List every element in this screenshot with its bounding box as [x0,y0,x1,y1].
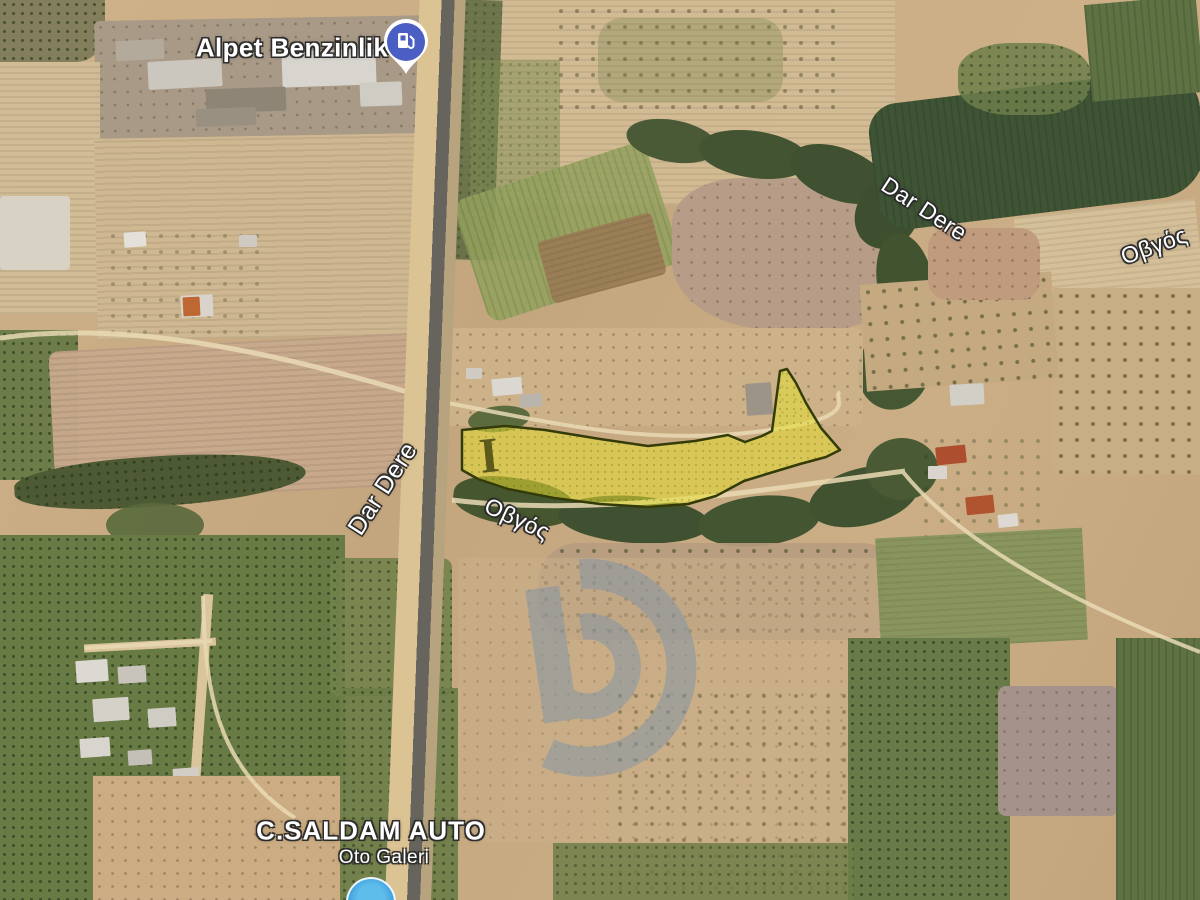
dealer-name-label[interactable]: C.SALDAM AUTO [256,816,486,847]
dealer-type-label: Oto Galeri [339,847,430,869]
map-overlays [0,0,1200,900]
b-logo-watermark-icon [542,574,681,762]
map-canvas[interactable]: Alpet Benzinlik Dar Dere Οβγός Dar Dere … [0,0,1200,900]
gas-station-pin-icon[interactable] [379,16,433,81]
gas-station-label[interactable]: Alpet Benzinlik [196,33,388,64]
